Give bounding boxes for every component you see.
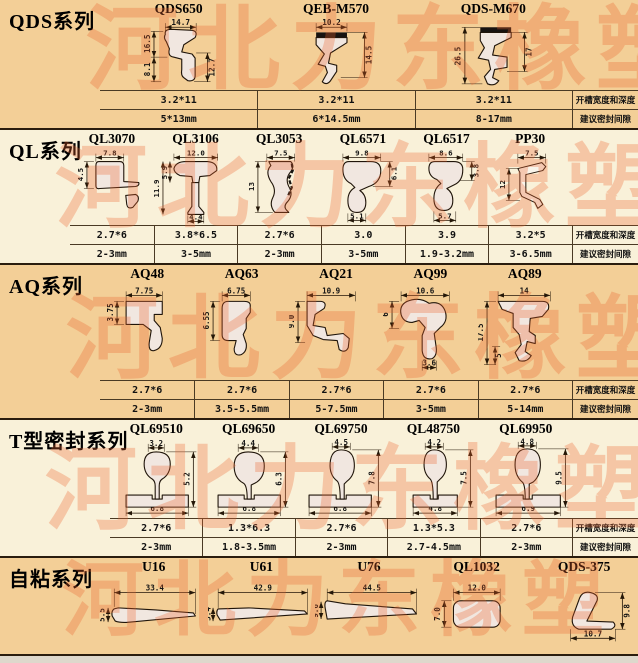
groove-size-ql69650: 1.3*6.3 [202, 518, 294, 537]
gap-ql3106: 3-5mm [154, 244, 238, 263]
diagram-qds650: 14.7 16.5 8.1 12.7 [100, 18, 257, 90]
diagram-ql6571: 9.8 6.1 5.1 [321, 148, 405, 225]
product-name: QL3106 [154, 130, 238, 148]
profile-shape [96, 162, 139, 189]
groove-size-ql3070: 2.7*6 [70, 225, 154, 244]
product-ql69650: QL69650 4.4 6.3 6.8 [202, 420, 294, 518]
page-bottom-strip [0, 654, 638, 663]
groove-size-pp30: 3.2*5 [488, 225, 572, 244]
gap-ql48750: 2.7-4.5mm [387, 537, 479, 556]
series-title-t-seal: T型密封系列 [0, 420, 110, 518]
dim-right: 17 [524, 47, 533, 57]
dim-left: 5.4 [208, 607, 213, 621]
product-name: QL1032 [423, 558, 531, 576]
diagram-aq63: 6.75 6.55 [194, 283, 288, 380]
dim-top: 4.4 [242, 439, 256, 448]
product-name: AQ21 [289, 265, 383, 283]
metal-strip [480, 27, 511, 32]
dim-top: 7.75 [135, 286, 154, 295]
section-t-seal: T型密封系列 QL69510 3.2 5.2 6.8 [0, 420, 638, 558]
profile-shape [401, 299, 446, 359]
diagram-ql3070: 7.8 4.5 [70, 148, 154, 225]
section-ql: QL系列 QL3070 7.8 4.5 QL3 [0, 130, 638, 265]
dim-left: 6 [383, 312, 390, 317]
product-name: QL69950 [480, 420, 572, 438]
diagram-ql69650: 4.4 6.3 6.8 [202, 438, 294, 518]
profile-shape [126, 301, 162, 350]
diagram-u61: 42.9 5.4 [208, 576, 316, 656]
gap-qds-m670: 8-17mm [415, 109, 572, 128]
dim-top: 42.9 [253, 584, 272, 593]
profile-shape [144, 452, 170, 499]
groove-size-ql69750: 2.7*6 [295, 518, 387, 537]
product-aq89: AQ89 14 17.5 5 [478, 265, 572, 380]
dim-left: 5.5 [100, 608, 107, 622]
dim-left: 6.55 [202, 311, 211, 330]
section-self-adhesive: 自粘系列 U16 33.4 5.5 U61 [0, 558, 638, 663]
product-name: U61 [208, 558, 316, 576]
dim-top: 9.8 [355, 149, 369, 158]
diagram-u16: 33.4 5.5 [100, 576, 208, 656]
label-groove: 开槽宽度和深度 [572, 90, 638, 109]
dim-top: 12.0 [186, 149, 204, 158]
dim-top: 4.8 [520, 438, 534, 446]
gap-aq63: 3.5-5.5mm [194, 399, 288, 418]
groove-size-ql6571: 3.0 [321, 225, 405, 244]
diagram-ql1032: 12.0 7.0 [423, 576, 531, 656]
gap-pp30: 3-6.5mm [488, 244, 572, 263]
product-ql3106: QL3106 12.0 11.9 5.9 4.4 [154, 130, 238, 225]
product-u16: U16 33.4 5.5 [100, 558, 208, 656]
product-ql1032: QL1032 12.0 7.0 [423, 558, 531, 656]
diagram-pp30: 7.5 12 [488, 148, 572, 225]
dim-top: 33.4 [146, 584, 165, 593]
dim-right: 6.1 [390, 166, 399, 180]
profile-shape [330, 450, 354, 499]
diagram-u76: 44.5 9.6 [315, 576, 423, 656]
series-title-aq: AQ系列 [0, 265, 100, 380]
product-name: U76 [315, 558, 423, 576]
label-column-spacer [572, 265, 638, 380]
groove-size-aq99: 2.7*6 [383, 380, 477, 399]
dim-top: 4.2 [428, 438, 442, 447]
profile-shape [453, 601, 500, 627]
profile-shape [343, 162, 381, 213]
label-gap: 建议密封间隙 [572, 537, 638, 556]
groove-size-ql69510: 2.7*6 [110, 518, 202, 537]
series-title-qds: QDS系列 [0, 0, 100, 90]
dim-bottom: 5.7 [438, 211, 452, 220]
product-name: AQ89 [478, 265, 572, 283]
gap-qds650: 5*13mm [100, 109, 257, 128]
dim-right: 9.8 [623, 604, 632, 618]
product-qeb-m570: QEB-M570 10.2 14.5 [257, 0, 414, 90]
product-aq21: AQ21 10.9 9.0 [289, 265, 383, 380]
profile-shape [164, 29, 196, 81]
dimension-lines: 12.0 11.9 5.9 4.4 [154, 149, 218, 224]
dim-left2: 5.9 [160, 165, 169, 179]
diagram-ql3106: 12.0 11.9 5.9 4.4 [154, 148, 238, 225]
label-groove: 开槽宽度和深度 [572, 225, 638, 244]
groove-size-ql48750: 1.3*5.3 [387, 518, 479, 537]
profile-shape [325, 601, 417, 619]
profile-shape [223, 301, 251, 355]
groove-size-aq21: 2.7*6 [289, 380, 383, 399]
dim-top: 44.5 [363, 584, 382, 593]
gap-ql3070: 2-3mm [70, 244, 154, 263]
dim-left2: 8.1 [143, 62, 152, 76]
dim-left: 13 [247, 182, 256, 191]
groove-size-ql3053: 2.7*6 [237, 225, 321, 244]
product-name: QL69510 [110, 420, 202, 438]
label-column-spacer [572, 420, 638, 518]
groove-size-aq48: 2.7*6 [100, 380, 194, 399]
product-u76: U76 44.5 9.6 [315, 558, 423, 656]
groove-size-aq89: 2.7*6 [478, 380, 572, 399]
dim-top: 7.8 [103, 149, 117, 158]
product-name: QL48750 [387, 420, 479, 438]
label-column-spacer [572, 130, 638, 225]
product-name: U16 [100, 558, 208, 576]
gap-ql3053: 2-3mm [237, 244, 321, 263]
profile-shape [424, 450, 446, 499]
product-name: QDS-375 [530, 558, 638, 576]
product-ql3053: QL3053 7.5 13 [237, 130, 321, 225]
product-name: QL6517 [405, 130, 489, 148]
product-ql6571: QL6571 9.8 6.1 5.1 [321, 130, 405, 225]
gap-aq21: 5-7.5mm [289, 399, 383, 418]
profile-shape [316, 38, 347, 84]
gap-aq99: 3-5mm [383, 399, 477, 418]
product-name: QEB-M570 [257, 0, 414, 18]
dim-left: 9.0 [289, 314, 296, 328]
profile-shape [478, 32, 511, 84]
dim-right: 3.8 [471, 163, 480, 177]
dim-left2: 5 [494, 353, 503, 358]
diagram-ql6517: 8.6 3.8 5.7 [405, 148, 489, 225]
profile-shape [429, 162, 463, 211]
profile-shape [216, 608, 307, 620]
profile-stem [188, 183, 204, 215]
dim-top: 7.5 [525, 149, 538, 158]
profile-shape [573, 592, 616, 629]
dim-top: 4.5 [334, 438, 348, 447]
groove-size-ql69950: 2.7*6 [480, 518, 572, 537]
dim-right: 14.5 [365, 45, 374, 64]
product-name: QL69650 [202, 420, 294, 438]
dim-left: 3.75 [106, 303, 115, 322]
product-ql6517: QL6517 8.6 3.8 5.7 [405, 130, 489, 225]
product-qds650: QDS650 14.7 16.5 8.1 12.7 [100, 0, 257, 90]
product-ql69950: QL69950 4.8 9.5 6.9 [480, 420, 572, 518]
gap-ql69950: 2-3mm [480, 537, 572, 556]
profile-shape [112, 608, 195, 623]
dim-top: 12.0 [467, 584, 486, 593]
dim-top: 10.9 [322, 286, 341, 295]
gap-ql6517: 1.9-3.2mm [405, 244, 489, 263]
section-qds: QDS系列 QDS650 14.7 16.5 8.1 [0, 0, 638, 130]
product-aq48: AQ48 7.75 3.75 [100, 265, 194, 380]
product-qds-375: QDS-375 9.8 10.7 [530, 558, 638, 656]
dim-top: 3.2 [149, 439, 163, 448]
dim-right: 7.8 [367, 471, 376, 485]
label-groove: 开槽宽度和深度 [572, 380, 638, 399]
product-name: QDS650 [100, 0, 257, 18]
product-qds-m670: QDS-M670 26.5 17 [415, 0, 572, 90]
groove-size-qds-m670: 3.2*11 [415, 90, 572, 109]
dim-right: 7.5 [460, 471, 469, 485]
dim-right: 5.2 [182, 472, 191, 486]
dim-top: 7.5 [274, 149, 287, 158]
profile-shape [268, 162, 293, 213]
gap-aq89: 5-14mm [478, 399, 572, 418]
product-ql3070: QL3070 7.8 4.5 [70, 130, 154, 225]
diagram-qeb-m570: 10.2 14.5 [257, 18, 414, 90]
dim-right: 12.7 [208, 58, 217, 77]
dim-left: 16.5 [143, 34, 152, 53]
product-name: QDS-M670 [415, 0, 572, 18]
label-gap: 建议密封间隙 [572, 399, 638, 418]
dim-top: 8.6 [439, 149, 453, 158]
product-name: AQ63 [194, 265, 288, 283]
product-u61: U61 42.9 5.4 [208, 558, 316, 656]
profile-shape [174, 162, 217, 183]
dim-top: 14 [519, 286, 529, 295]
product-name: AQ48 [100, 265, 194, 283]
groove-size-aq63: 2.7*6 [194, 380, 288, 399]
section-aq: AQ系列 AQ48 7.75 3.75 AQ63 [0, 265, 638, 420]
diagram-qds-m670: 26.5 17 [415, 18, 572, 90]
dim-right: 9.5 [554, 471, 563, 485]
dim-top: 6.75 [228, 286, 247, 295]
gap-ql69650: 1.8-3.5mm [202, 537, 294, 556]
dimension-lines: 8.6 3.8 5.7 [429, 149, 481, 223]
product-name: AQ99 [383, 265, 477, 283]
diagram-aq99: 10.6 6 3.6 [383, 283, 477, 380]
product-ql48750: QL48750 4.2 7.5 4.8 [387, 420, 479, 518]
dim-left: 26.5 [453, 46, 462, 65]
product-name: PP30 [488, 130, 572, 148]
dim-top: 14.7 [171, 18, 190, 27]
groove-size-qds650: 3.2*11 [100, 90, 257, 109]
gap-aq48: 2-3mm [100, 399, 194, 418]
product-name: QL3070 [70, 130, 154, 148]
gap-ql69510: 2-3mm [110, 537, 202, 556]
profile-shape [307, 301, 349, 351]
gap-qeb-m570: 6*14.5mm [257, 109, 414, 128]
profile-shape [235, 452, 265, 499]
groove-size-qeb-m570: 3.2*11 [257, 90, 414, 109]
product-name: QL69750 [295, 420, 387, 438]
dim-bottom: 3.6 [423, 359, 437, 368]
product-ql69510: QL69510 3.2 5.2 6.8 [110, 420, 202, 518]
metal-strip [316, 32, 347, 37]
profile-shape [518, 163, 546, 209]
gap-ql69750: 2-3mm [295, 537, 387, 556]
dim-left: 4.5 [76, 168, 85, 181]
diagram-aq89: 14 17.5 5 [478, 283, 572, 380]
diagram-ql69750: 4.5 7.8 6.8 [295, 438, 387, 518]
series-title-ql: QL系列 [0, 130, 70, 225]
dim-left: 9.6 [315, 604, 320, 618]
catalog-page: QDS系列 QDS650 14.7 16.5 8.1 [0, 0, 638, 663]
profile-shape [498, 301, 549, 361]
product-name: QL6571 [321, 130, 405, 148]
groove-size-ql6517: 3.9 [405, 225, 489, 244]
label-column-spacer [572, 0, 638, 90]
dim-top: 10.6 [416, 286, 435, 295]
product-name: QL3053 [237, 130, 321, 148]
label-gap: 建议密封间隙 [572, 109, 638, 128]
dim-top: 10.2 [323, 18, 342, 27]
dim-left: 11.9 [154, 179, 161, 197]
dim-right: 6.3 [275, 472, 284, 486]
profile-shape [515, 449, 540, 499]
label-gap: 建议密封间隙 [572, 244, 638, 263]
product-ql69750: QL69750 4.5 7.8 6.8 [295, 420, 387, 518]
diagram-ql69510: 3.2 5.2 6.8 [110, 438, 202, 518]
diagram-aq21: 10.9 9.0 [289, 283, 383, 380]
label-groove: 开槽宽度和深度 [572, 518, 638, 537]
groove-size-ql3106: 3.8*6.5 [154, 225, 238, 244]
product-aq99: AQ99 10.6 6 3.6 [383, 265, 477, 380]
dim-bottom: 10.7 [584, 629, 603, 638]
profile-hook [126, 194, 139, 208]
diagram-aq48: 7.75 3.75 [100, 283, 194, 380]
gap-ql6571: 3-5mm [321, 244, 405, 263]
series-title-self-adhesive: 自粘系列 [0, 558, 100, 656]
diagram-ql48750: 4.2 7.5 4.8 [387, 438, 479, 518]
dim-left: 7.0 [433, 607, 442, 621]
diagram-ql69950: 4.8 9.5 6.9 [480, 438, 572, 518]
dim-left: 17.5 [478, 323, 485, 342]
diagram-qds-375: 9.8 10.7 [530, 576, 638, 656]
dim-left: 12 [498, 180, 507, 189]
product-pp30: PP30 7.5 12 [488, 130, 572, 225]
diagram-ql3053: 7.5 13 [237, 148, 321, 225]
product-aq63: AQ63 6.75 6.55 [194, 265, 288, 380]
